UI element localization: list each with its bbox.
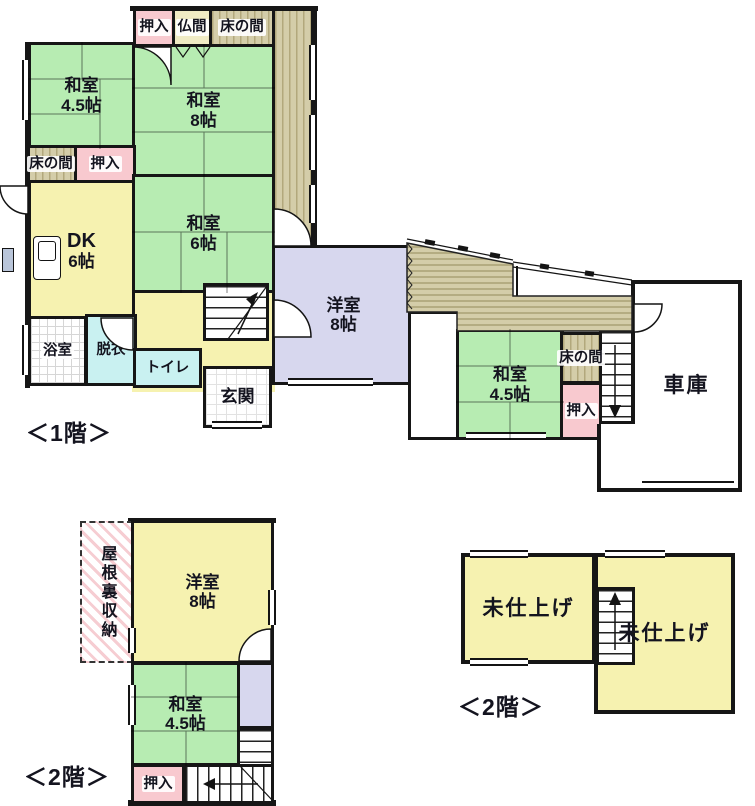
closet-oshiire-top: 押入 <box>133 8 175 47</box>
room-yoshitsu-8-1f: 洋室 8帖 <box>272 245 415 385</box>
stairs-2f-upper <box>237 727 274 767</box>
window <box>128 685 136 725</box>
room-unfinished-left: 未仕上げ <box>461 553 596 664</box>
eave-line <box>407 239 513 260</box>
room-genkan: 玄関 <box>203 366 272 428</box>
room-size: 4.5帖 <box>61 96 102 115</box>
room-label: 和室 <box>493 365 527 384</box>
window <box>605 550 665 558</box>
caption-floor1: ＜1階＞ <box>26 414 112 448</box>
stairs-2f-lower <box>183 764 274 804</box>
room-label: 浴室 <box>41 343 74 359</box>
room-washitsu-4-5-nw: 和室 4.5帖 <box>28 42 135 149</box>
window <box>309 45 317 100</box>
attic-storage-yaneura: 屋根裏収納 <box>80 521 133 663</box>
stairs-down-1f <box>599 329 635 424</box>
room-yoshitsu-8-2f: 洋室 8帖 <box>131 520 274 664</box>
wall <box>130 6 318 11</box>
room-washitsu-4-5-2f: 和室 4.5帖 <box>131 662 240 766</box>
window <box>22 325 30 375</box>
closet-label: 押入 <box>142 776 175 792</box>
room-label: 洋室 <box>327 296 361 315</box>
caption-floor2-left: ＜2階＞ <box>24 758 110 792</box>
garage-door-opening <box>642 481 734 490</box>
alcove-tokonoma-west: 床の間 <box>25 145 77 183</box>
annex-room <box>408 311 460 440</box>
window <box>268 590 276 625</box>
post <box>540 263 550 269</box>
closet-label: 押入 <box>565 403 598 419</box>
window <box>128 628 136 653</box>
room-washitsu-8: 和室 8帖 <box>132 44 275 177</box>
window <box>470 658 528 666</box>
room-size: 8帖 <box>190 111 216 130</box>
alcove-label: 床の間 <box>27 156 75 172</box>
window <box>288 378 373 386</box>
room-label: トイレ <box>146 360 190 376</box>
post <box>490 252 501 259</box>
floor-plan: 和室 4.5帖 和室 8帖 押入 仏間 床の間 床の間 押入 和室 6帖 DK … <box>0 0 755 806</box>
room-size: 4.5帖 <box>165 714 206 733</box>
alcove-label: 床の間 <box>218 19 266 35</box>
stairs-1f <box>203 283 269 341</box>
closet-oshiire-east: 押入 <box>560 382 602 440</box>
door-arc <box>0 186 28 214</box>
window <box>466 432 546 440</box>
room-toire: トイレ <box>133 348 202 388</box>
garage-extension <box>597 424 635 492</box>
closet-oshiire-2f: 押入 <box>131 764 185 804</box>
post <box>458 245 469 252</box>
room-datsui: 脱衣 <box>85 314 137 386</box>
room-label: 和室 <box>65 76 99 95</box>
room-size: 6帖 <box>190 234 216 253</box>
attic-label: 屋根裏収納 <box>98 545 116 640</box>
window <box>309 115 317 170</box>
kitchen-sink-bowl <box>38 241 56 261</box>
room-label: 玄関 <box>221 387 255 406</box>
window <box>470 550 528 558</box>
room-label: 和室 <box>187 214 221 233</box>
room-label: 洋室 <box>186 573 220 592</box>
room-size: 8帖 <box>189 592 215 611</box>
window <box>510 266 518 296</box>
room-size: 6帖 <box>68 252 94 271</box>
room-washitsu-6: 和室 6帖 <box>132 174 275 293</box>
closet-label: 押入 <box>89 156 122 172</box>
room-label: 未仕上げ <box>619 622 711 646</box>
room-label: 和室 <box>169 695 203 714</box>
alcove-tokonoma-top: 床の間 <box>209 8 275 47</box>
closet-oshiire-west: 押入 <box>74 145 136 183</box>
room-label: 仏間 <box>176 19 209 35</box>
room-garage: 車庫 <box>631 280 742 492</box>
eave-line <box>513 267 632 285</box>
room-label: 未仕上げ <box>483 597 575 621</box>
room-washitsu-4-5-east: 和室 4.5帖 <box>456 329 564 440</box>
room-yokushitsu: 浴室 <box>28 316 87 386</box>
alcove-tokonoma-east: 床の間 <box>560 332 602 384</box>
post <box>585 270 595 276</box>
room-butsuma: 仏間 <box>172 8 212 47</box>
room-size: 8帖 <box>330 315 356 334</box>
room-label: DK <box>67 230 96 252</box>
window <box>212 421 262 429</box>
caption-floor2-right: ＜2階＞ <box>458 688 544 722</box>
room-size: 4.5帖 <box>490 385 531 404</box>
post <box>425 239 436 246</box>
room-label: 車庫 <box>664 374 710 398</box>
alcove-label: 床の間 <box>557 350 605 366</box>
room-label: 和室 <box>187 91 221 110</box>
room-label: 脱衣 <box>97 342 126 358</box>
window <box>22 60 30 120</box>
eave-line <box>513 262 632 280</box>
water-heater-unit <box>2 248 14 272</box>
stairwell-void-2f <box>237 662 274 729</box>
closet-label: 押入 <box>138 19 171 35</box>
window <box>309 185 317 223</box>
